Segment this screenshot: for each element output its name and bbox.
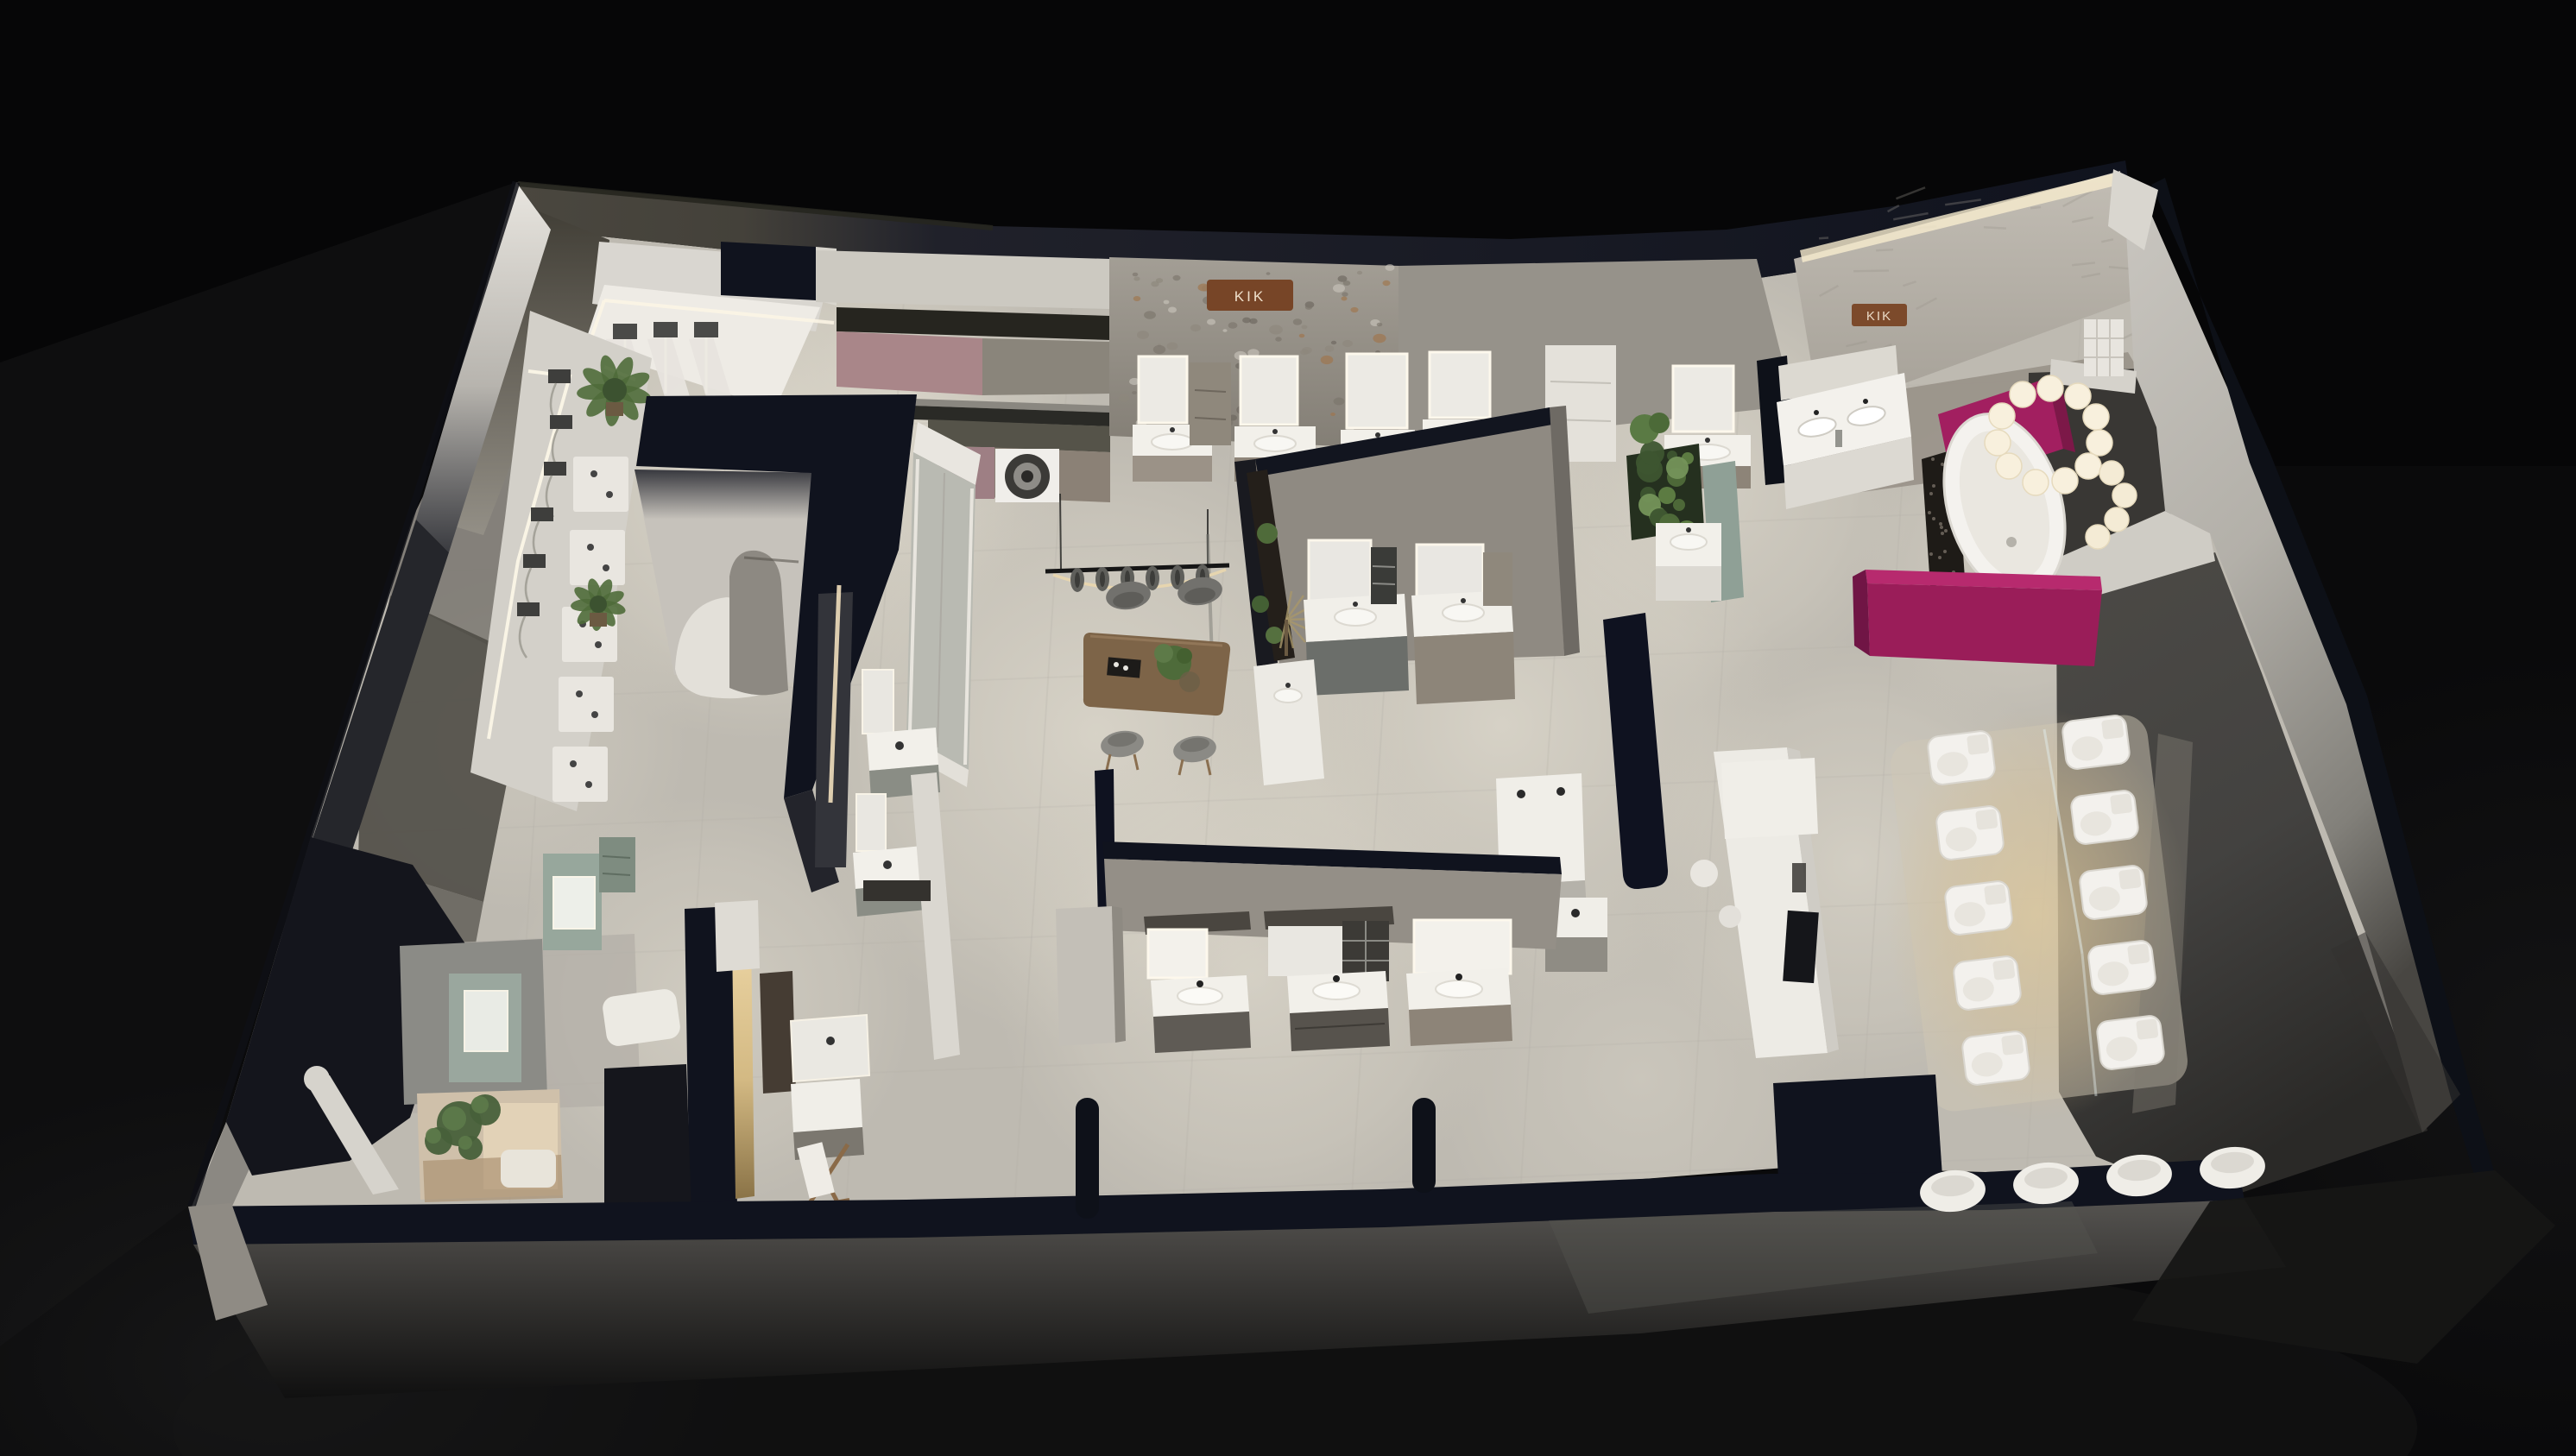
svg-text:KIK: KIK: [1866, 309, 1892, 324]
svg-text:KIK: KIK: [1234, 288, 1266, 305]
